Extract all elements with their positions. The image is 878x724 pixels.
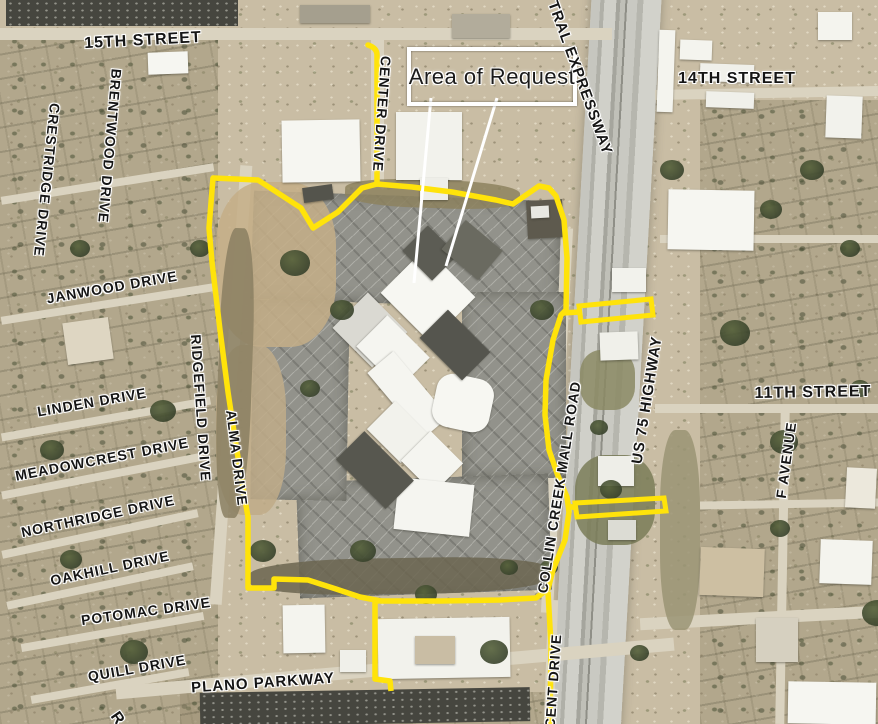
building <box>300 5 370 23</box>
tree-cluster <box>720 320 750 346</box>
tree-cluster <box>280 250 310 276</box>
building <box>706 91 755 109</box>
building <box>818 12 852 40</box>
building <box>340 650 366 672</box>
tree-cluster <box>150 400 176 422</box>
tree-cluster <box>770 520 790 537</box>
building <box>415 636 455 664</box>
tree-cluster <box>480 640 508 664</box>
building <box>283 605 326 654</box>
tree-cluster <box>70 240 90 257</box>
building <box>396 112 462 180</box>
building <box>825 95 862 138</box>
tree-cluster <box>350 540 376 562</box>
building <box>680 39 713 60</box>
parking-lot-cars <box>200 687 531 724</box>
building <box>281 119 360 182</box>
tree-cluster <box>600 480 622 499</box>
ground-patch <box>660 430 700 630</box>
building <box>62 317 113 365</box>
label-14th-street: 14TH STREET <box>678 70 796 88</box>
tree-cluster <box>660 160 684 180</box>
building <box>612 268 646 292</box>
building <box>667 189 754 250</box>
tree-cluster <box>300 380 320 397</box>
road <box>655 404 878 413</box>
building <box>452 14 510 38</box>
building <box>608 520 636 540</box>
area-of-request-callout: Area of Request <box>407 47 577 106</box>
building <box>420 178 448 200</box>
building <box>819 539 873 585</box>
building <box>600 331 639 360</box>
tree-cluster <box>630 645 649 661</box>
building <box>788 681 877 724</box>
building <box>699 547 765 597</box>
tree-cluster <box>250 540 276 562</box>
parking-lot-cars <box>6 0 238 26</box>
area-of-request-label: Area of Request <box>409 64 575 90</box>
aerial-map: Area of Request 15TH STREET14TH STREET11… <box>0 0 878 724</box>
label-11th-street: 11TH STREET <box>754 383 871 403</box>
building <box>756 618 798 662</box>
tree-cluster <box>760 200 782 219</box>
building <box>845 467 877 509</box>
building <box>657 30 676 113</box>
tree-cluster <box>190 240 210 257</box>
building <box>148 51 189 74</box>
tree-cluster <box>840 240 860 257</box>
tree-cluster <box>415 585 437 604</box>
building <box>531 206 550 219</box>
